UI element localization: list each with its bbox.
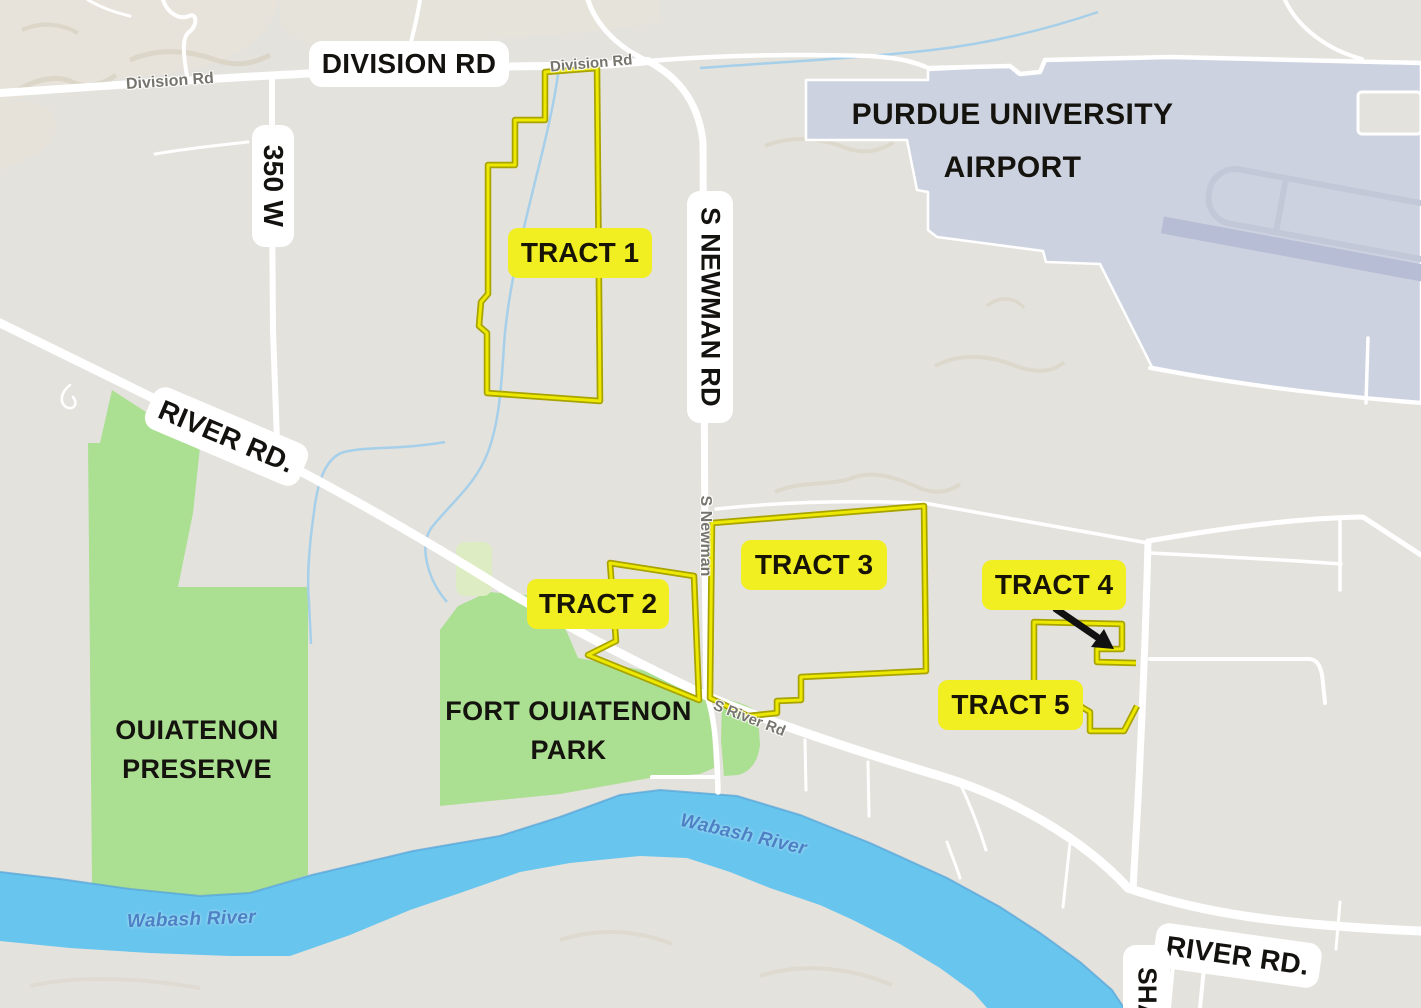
tr-road-1 [1148,517,1421,555]
hook-road [62,385,76,408]
stub-br-3 [1336,902,1340,949]
minor-nw-road [155,142,248,154]
stub-park-3 [947,842,960,878]
stub-br-1 [1169,933,1176,1008]
tract-1-outline [479,68,600,401]
tr-road-2 [1150,553,1341,564]
tract-5-outline [1075,703,1137,731]
map-canvas[interactable]: DIVISION RD Division Rd Division Rd 350 … [0,0,1421,1008]
tract-3-outline [710,506,926,716]
creek-tract1 [425,74,558,602]
airport-vroad [1366,338,1368,403]
stub-park-1 [805,740,806,790]
tract-4-outline [1034,622,1136,706]
stub-br-2 [1200,937,1207,1008]
airport-notch [1358,92,1421,134]
fort-ouiatenon-park-area [440,592,714,806]
newman-east-road [716,502,1148,543]
ouiatenon-preserve-area [88,390,308,896]
cr-350w-road [272,77,277,441]
airport [806,57,1421,402]
tr-road-3 [1150,659,1325,703]
topright-road [1285,0,1362,59]
river-rd-east-road [1128,888,1421,931]
stub-mid-1 [1063,843,1070,907]
map-graphics [0,0,1421,1008]
tract-4-arrow [1056,609,1114,649]
stub-park-2 [868,762,869,816]
airport-area [806,57,1421,402]
